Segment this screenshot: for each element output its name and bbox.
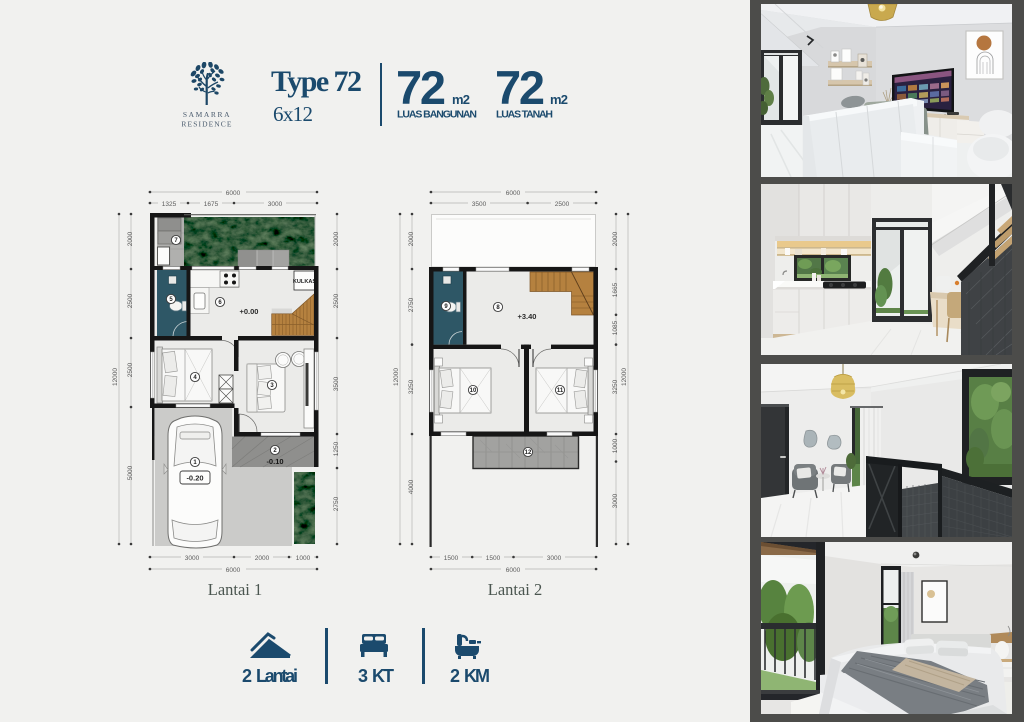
svg-text:6000: 6000 <box>226 190 241 197</box>
svg-text:2500: 2500 <box>127 293 134 308</box>
svg-text:3500: 3500 <box>472 201 487 208</box>
svg-text:12000: 12000 <box>621 368 628 386</box>
svg-text:m2: m2 <box>452 92 470 107</box>
svg-text:2500: 2500 <box>333 293 340 308</box>
svg-text:1325: 1325 <box>162 201 177 208</box>
svg-text:1675: 1675 <box>204 201 219 208</box>
svg-text:12: 12 <box>525 450 532 456</box>
svg-text:4000: 4000 <box>408 479 415 494</box>
svg-text:2: 2 <box>242 666 252 686</box>
svg-text:2: 2 <box>450 666 460 686</box>
svg-text:2750: 2750 <box>408 297 415 312</box>
svg-text:1085: 1085 <box>612 320 619 335</box>
svg-text:3000: 3000 <box>547 555 562 562</box>
svg-text:1000: 1000 <box>296 555 311 562</box>
svg-text:+0.00: +0.00 <box>240 307 259 316</box>
svg-text:2000: 2000 <box>255 555 270 562</box>
svg-text:m2: m2 <box>550 92 568 107</box>
svg-text:SAMARRA: SAMARRA <box>183 110 231 119</box>
svg-text:11: 11 <box>557 388 564 394</box>
svg-text:5000: 5000 <box>127 465 134 480</box>
svg-text:3250: 3250 <box>612 379 619 394</box>
svg-text:6000: 6000 <box>506 190 521 197</box>
svg-text:-0.10: -0.10 <box>266 457 283 466</box>
svg-text:2000: 2000 <box>408 231 415 246</box>
svg-text:72: 72 <box>495 61 545 114</box>
svg-text:2750: 2750 <box>333 496 340 511</box>
svg-text:LUAS BANGUNAN: LUAS BANGUNAN <box>397 109 477 121</box>
svg-text:3: 3 <box>358 666 368 686</box>
svg-text:3000: 3000 <box>612 493 619 508</box>
svg-text:6000: 6000 <box>506 567 521 574</box>
svg-text:3000: 3000 <box>268 201 283 208</box>
svg-text:Lantai: Lantai <box>256 666 298 686</box>
svg-text:+3.40: +3.40 <box>518 312 537 321</box>
svg-text:10: 10 <box>470 388 477 394</box>
svg-text:1500: 1500 <box>444 555 459 562</box>
svg-text:6000: 6000 <box>226 567 241 574</box>
svg-text:3000: 3000 <box>185 555 200 562</box>
svg-text:KULKAS: KULKAS <box>293 279 317 285</box>
svg-text:1250: 1250 <box>333 441 340 456</box>
svg-text:LUAS TANAH: LUAS TANAH <box>496 109 553 121</box>
svg-text:Type 72: Type 72 <box>271 65 362 98</box>
svg-text:3250: 3250 <box>408 379 415 394</box>
svg-text:KM: KM <box>464 666 490 686</box>
svg-text:-0.20: -0.20 <box>186 474 203 483</box>
svg-text:RESIDENCE: RESIDENCE <box>181 120 232 129</box>
svg-text:72: 72 <box>396 61 446 114</box>
svg-text:2000: 2000 <box>127 231 134 246</box>
svg-text:2500: 2500 <box>555 201 570 208</box>
svg-text:1665: 1665 <box>612 282 619 297</box>
svg-text:1500: 1500 <box>486 555 501 562</box>
svg-text:3500: 3500 <box>333 376 340 391</box>
svg-text:12000: 12000 <box>393 368 400 386</box>
svg-text:6x12: 6x12 <box>273 102 313 126</box>
svg-text:1000: 1000 <box>612 438 619 453</box>
svg-text:12000: 12000 <box>112 368 119 386</box>
svg-text:2000: 2000 <box>333 231 340 246</box>
svg-text:KT: KT <box>372 666 394 686</box>
svg-text:2000: 2000 <box>612 231 619 246</box>
svg-text:2500: 2500 <box>127 362 134 377</box>
